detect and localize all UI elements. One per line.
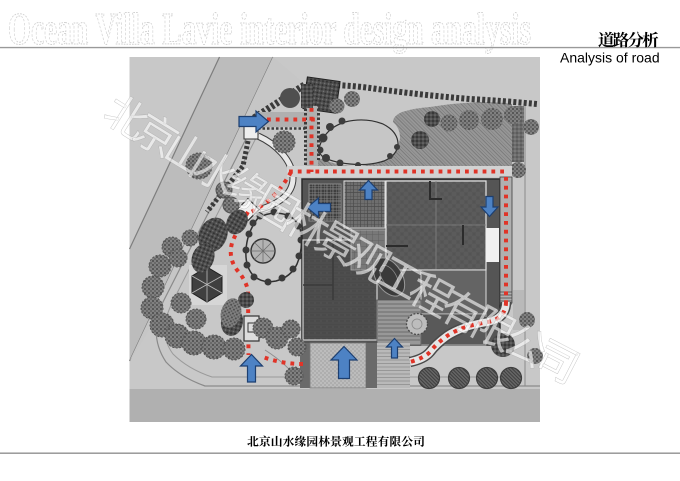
svg-text:Analysis of road: Analysis of road	[560, 50, 660, 66]
svg-text:Ocean Villa Lavie interior des: Ocean Villa Lavie interior design analys…	[8, 3, 531, 54]
